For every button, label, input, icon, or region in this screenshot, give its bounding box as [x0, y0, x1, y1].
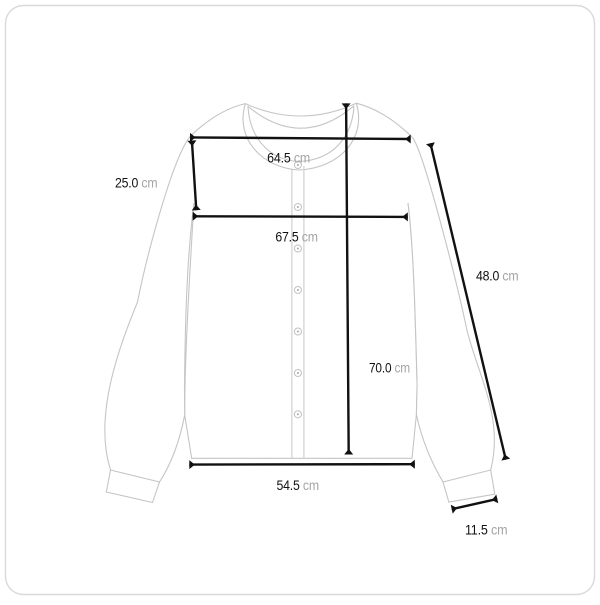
- svg-text:48.0 cm: 48.0 cm: [476, 269, 519, 285]
- svg-text:70.0 cm: 70.0 cm: [369, 361, 410, 377]
- svg-text:54.5 cm: 54.5 cm: [276, 478, 319, 494]
- svg-text:67.5 cm: 67.5 cm: [275, 230, 318, 246]
- svg-text:11.5 cm: 11.5 cm: [465, 523, 508, 539]
- svg-text:25.0 cm: 25.0 cm: [115, 175, 158, 191]
- svg-text:64.5 cm: 64.5 cm: [267, 150, 310, 166]
